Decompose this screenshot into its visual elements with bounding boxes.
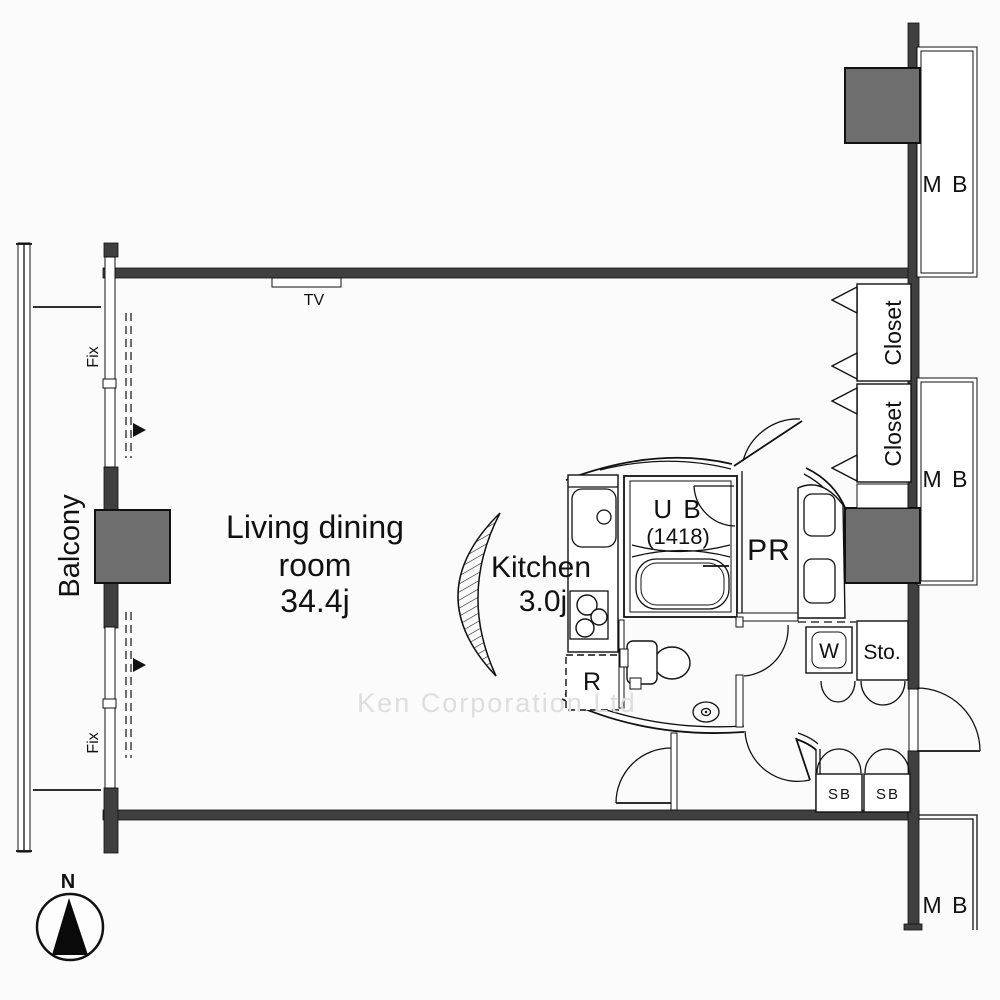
kitchen-area-label: 3.0j — [519, 585, 567, 618]
washer-label: W — [819, 640, 839, 663]
powder-room-label: PR — [747, 534, 791, 567]
structural-column — [95, 510, 170, 583]
room-labels: Living dining room 34.4j — [226, 509, 404, 619]
fix-label-upper: Fix — [85, 346, 102, 367]
toilet-room-door-swing-arc — [744, 625, 788, 676]
kitchen: R Kitchen 3.0j — [458, 475, 620, 710]
entrance-door-swing-arc — [917, 688, 980, 751]
bathtub-inner — [641, 563, 724, 605]
wall-right-end-cap — [904, 924, 922, 930]
closet-upper-folding-door-1 — [832, 287, 857, 313]
washroom-door-swing-arc — [745, 731, 810, 781]
toilet-room-right-wall-upper — [736, 617, 743, 627]
watermark: Ken Corporation Ltd — [357, 688, 637, 718]
washer-storage: W Sto. — [798, 621, 908, 705]
slide-direction-arrow-upper — [133, 423, 146, 437]
closet-lower-folding-door-1 — [832, 388, 857, 414]
closet-lower-folding-door-2 — [832, 455, 857, 481]
pipe-shaft-top — [845, 68, 920, 143]
window-upper — [105, 257, 115, 467]
tv-outlet: TV — [272, 278, 341, 309]
stove-burner-3 — [576, 619, 594, 637]
floor-drain-dot — [705, 711, 707, 713]
floor-plan: Balcony Fix Fix TV M B — [0, 0, 1000, 1000]
stove-burner-2 — [591, 609, 607, 625]
powder-room-bottom-wall — [737, 613, 798, 621]
meter-box-mid-label: M B — [923, 466, 970, 492]
shoe-boxes: SB SB — [816, 749, 910, 812]
closets: Closet Closet — [832, 284, 911, 508]
storage-label: Sto. — [863, 641, 900, 664]
wall-left-stub-mid-lower — [104, 583, 118, 628]
shoe-box-left-label: SB — [828, 786, 852, 803]
closet-upper-folding-door-2 — [832, 353, 857, 379]
meter-box-bottom-label: M B — [923, 892, 970, 918]
storage-door-arc-right — [883, 681, 905, 705]
window-lower-sash-joint — [103, 699, 116, 708]
shoe-box-left-door-arc-2 — [839, 749, 861, 773]
wall-top — [103, 268, 910, 278]
washer-door-arc-right — [838, 681, 855, 702]
pipe-shaft-mid — [845, 508, 920, 583]
closet-lower-label: Closet — [880, 401, 906, 467]
entrance-door-threshold — [909, 689, 918, 751]
pod-bottomright-inner-curve — [798, 733, 818, 744]
washer-door-arc-left — [821, 681, 838, 702]
living-room-area-label: 34.4j — [280, 583, 349, 619]
closet-upper-label: Closet — [880, 300, 906, 366]
shoe-box-right-door-arc-1 — [865, 749, 887, 773]
compass: N — [37, 871, 103, 960]
unit-bath-label: U B — [653, 494, 702, 524]
wall-left-stub-bottom — [104, 788, 118, 853]
storage-door-arc-left — [861, 681, 883, 705]
fix-label-lower: Fix — [85, 732, 102, 753]
wall-left-stub-mid-upper — [104, 467, 118, 511]
wall-bottom — [103, 810, 919, 820]
slide-direction-arrow-lower — [133, 658, 146, 672]
closet-lower-niche — [857, 484, 908, 508]
toilet-room-right-wall-lower — [736, 675, 743, 727]
shoe-box-right-door-arc-2 — [887, 749, 909, 773]
living-hall-partition — [671, 733, 677, 810]
exterior-walls — [103, 23, 922, 930]
wall-left-stub-top — [104, 243, 118, 257]
balcony: Balcony — [16, 243, 101, 852]
pod-top-inner-curve — [600, 461, 731, 470]
unit-bath-size-label: (1418) — [646, 524, 710, 549]
toilet-room — [619, 617, 788, 727]
living-hall-door-swing-arc — [616, 748, 671, 803]
living-room-label-line2: room — [279, 547, 352, 583]
toilet-bowl — [654, 647, 690, 679]
tv-outlet-box — [272, 278, 341, 287]
window-upper-sash-joint — [103, 379, 116, 388]
floor-plan-canvas: Balcony Fix Fix TV M B — [0, 0, 1000, 1000]
tv-label: TV — [304, 292, 325, 309]
unit-bath: U B (1418) — [624, 476, 737, 617]
kitchen-label: Kitchen — [491, 551, 591, 584]
toilet-flush-handle — [620, 649, 628, 667]
shoe-box-right-label: SB — [876, 786, 900, 803]
powder-room: PR — [737, 471, 845, 621]
kitchen-curved-partition — [458, 513, 500, 676]
meter-box-top-inner — [921, 51, 973, 273]
balcony-label: Balcony — [54, 494, 86, 598]
living-room-label-line1: Living dining — [226, 509, 404, 545]
north-label: N — [61, 871, 75, 893]
meter-box-top-label: M B — [923, 171, 970, 197]
